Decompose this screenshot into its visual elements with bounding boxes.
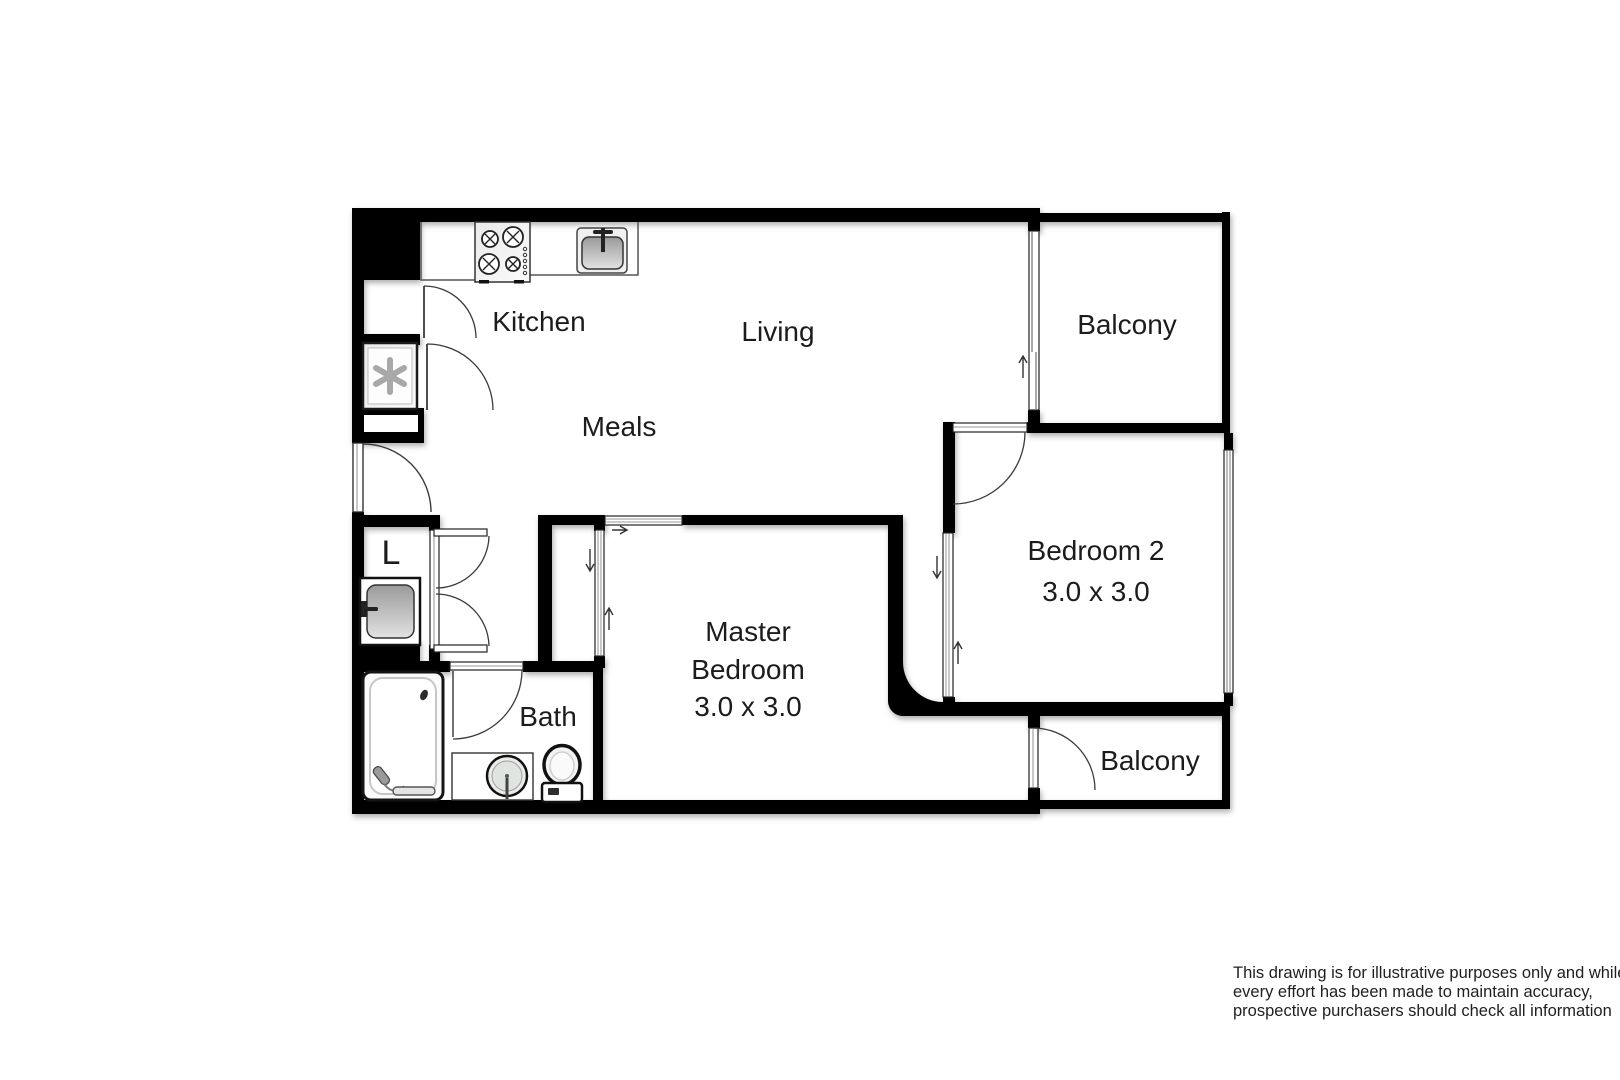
wall-balcony2-right [1222,716,1230,809]
closet-door [427,344,493,410]
label-kitchen: Kitchen [492,306,585,337]
wall-bedroom2-bottom [940,702,1230,716]
wall-bath-right [593,661,603,800]
bath-door [450,662,523,739]
wall-master-slider-stub-top [594,515,605,531]
wall-master-left [538,515,552,666]
master-top-sliding-door [605,516,682,534]
label-master-dims: 3.0 x 3.0 [694,691,801,722]
wall-top-main [352,208,1040,222]
bedroom2-door [953,423,1027,504]
wall-bedroom2-window-stub-top [1224,433,1233,450]
wall-laundry-top [352,515,438,527]
floorplan-drawing: Kitchen Living Meals Balcony Bedroom 2 3… [0,0,1620,1080]
hot-water-unit-icon [363,343,417,409]
label-laundry: L [382,534,401,572]
master-side-sliding-door [586,530,613,656]
wall-bath-top-west [364,661,450,672]
label-bedroom2-name: Bedroom 2 [1028,535,1165,566]
balcony2-door [1029,728,1095,790]
label-bedroom2-dims: 3.0 x 3.0 [1042,576,1149,607]
disclaimer-line-2: every effort has been made to maintain a… [1233,983,1593,1001]
wall-living-balcony-stub-top [1028,222,1040,231]
cooktop-icon [475,222,530,284]
wall-master-top-east [682,515,903,525]
wall-bath-top-east [523,661,603,672]
vanity-basin-icon [452,753,533,800]
disclaimer-line-3: prospective purchasers should check all … [1233,1002,1612,1020]
label-bath: Bath [519,701,577,732]
floorplan-canvas: Kitchen Living Meals Balcony Bedroom 2 3… [0,0,1620,1080]
entry-door [353,443,431,512]
balcony1-sliding-door [1019,231,1039,410]
label-master-line2: Bedroom [691,654,805,685]
wall-bedroom2-left-upper [943,422,955,533]
wall-balcony1-bottom [1038,423,1230,433]
wall-bottom-main [352,800,1040,814]
wall-balcony2-bottom [1040,800,1230,809]
wall-balcony2-door-stub-top [1028,716,1040,728]
pantry-door [424,286,476,338]
label-master-line1: Master [705,616,791,647]
wall-balcony1-top [1040,213,1230,222]
bedroom2-window [1224,450,1233,693]
kitchen-sink-icon [577,228,627,273]
bathtub-icon [363,672,443,800]
laundry-double-doors [430,529,489,652]
disclaimer-text: This drawing is for illustrative purpose… [1233,964,1620,1020]
shelf-slot [364,415,418,432]
label-balcony-top: Balcony [1077,309,1177,340]
wall-balcony1-right [1222,212,1230,433]
laundry-trough-icon [360,578,420,645]
wall-master-slider-stub-bottom [594,656,605,668]
toilet-icon [542,746,582,803]
bedroom2-sliding-door [933,533,962,697]
walls [352,208,1233,814]
label-balcony-bottom: Balcony [1100,745,1200,776]
wall-living-balcony-stub-bottom [1028,410,1040,425]
wall-balcony2-door-stub-bottom [1028,788,1040,800]
label-meals: Meals [582,411,657,442]
disclaimer-line-1: This drawing is for illustrative purpose… [1233,964,1620,982]
label-living: Living [741,316,814,347]
